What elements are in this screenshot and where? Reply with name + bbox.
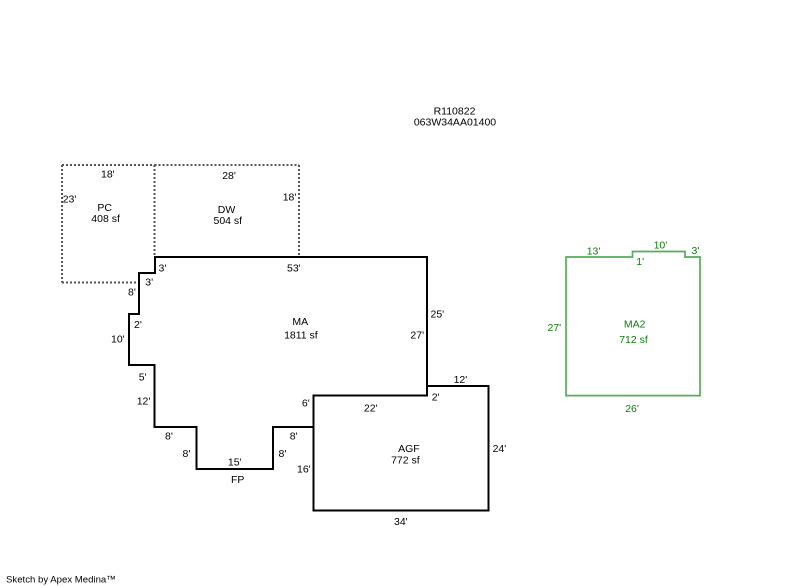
svg-text:15': 15': [228, 456, 242, 468]
svg-text:MA2: MA2: [624, 319, 646, 331]
svg-text:1': 1': [636, 256, 644, 268]
svg-text:Sketch by Apex Medina™: Sketch by Apex Medina™: [6, 575, 116, 586]
svg-text:12': 12': [454, 374, 468, 386]
svg-text:772 sf: 772 sf: [391, 455, 420, 467]
svg-text:8': 8': [183, 448, 191, 460]
svg-text:27': 27': [410, 329, 424, 341]
svg-text:2': 2': [432, 391, 440, 403]
svg-text:8': 8': [290, 431, 298, 443]
svg-text:27': 27': [548, 322, 562, 334]
svg-text:18': 18': [283, 192, 297, 204]
svg-text:063W34AA01400: 063W34AA01400: [414, 117, 496, 129]
svg-text:3': 3': [145, 276, 153, 288]
svg-text:25': 25': [431, 308, 445, 320]
svg-text:8': 8': [128, 286, 136, 298]
svg-text:18': 18': [101, 168, 115, 180]
svg-text:8': 8': [279, 448, 287, 460]
svg-text:13': 13': [587, 246, 601, 258]
svg-text:16': 16': [297, 464, 311, 476]
svg-text:504 sf: 504 sf: [213, 215, 242, 227]
svg-text:3': 3': [692, 245, 700, 257]
svg-text:2': 2': [134, 319, 142, 331]
svg-text:34': 34': [394, 516, 408, 528]
svg-text:AGF: AGF: [398, 443, 420, 455]
svg-text:3': 3': [159, 263, 167, 275]
svg-text:24': 24': [493, 443, 507, 455]
svg-text:5': 5': [139, 372, 147, 384]
svg-text:6': 6': [302, 398, 310, 410]
svg-text:MA: MA: [292, 316, 308, 328]
svg-text:8': 8': [165, 431, 173, 443]
svg-text:FP: FP: [231, 474, 244, 486]
svg-text:12': 12': [137, 396, 151, 408]
svg-text:53': 53': [287, 262, 301, 274]
svg-text:23': 23': [63, 193, 77, 205]
svg-text:408 sf: 408 sf: [91, 213, 120, 225]
svg-text:26': 26': [625, 403, 639, 415]
svg-text:712 sf: 712 sf: [619, 334, 648, 346]
svg-text:22': 22': [364, 402, 378, 414]
svg-text:1811 sf: 1811 sf: [284, 330, 318, 342]
svg-text:10': 10': [654, 239, 668, 251]
svg-text:10': 10': [111, 334, 125, 346]
svg-text:28': 28': [222, 170, 236, 182]
